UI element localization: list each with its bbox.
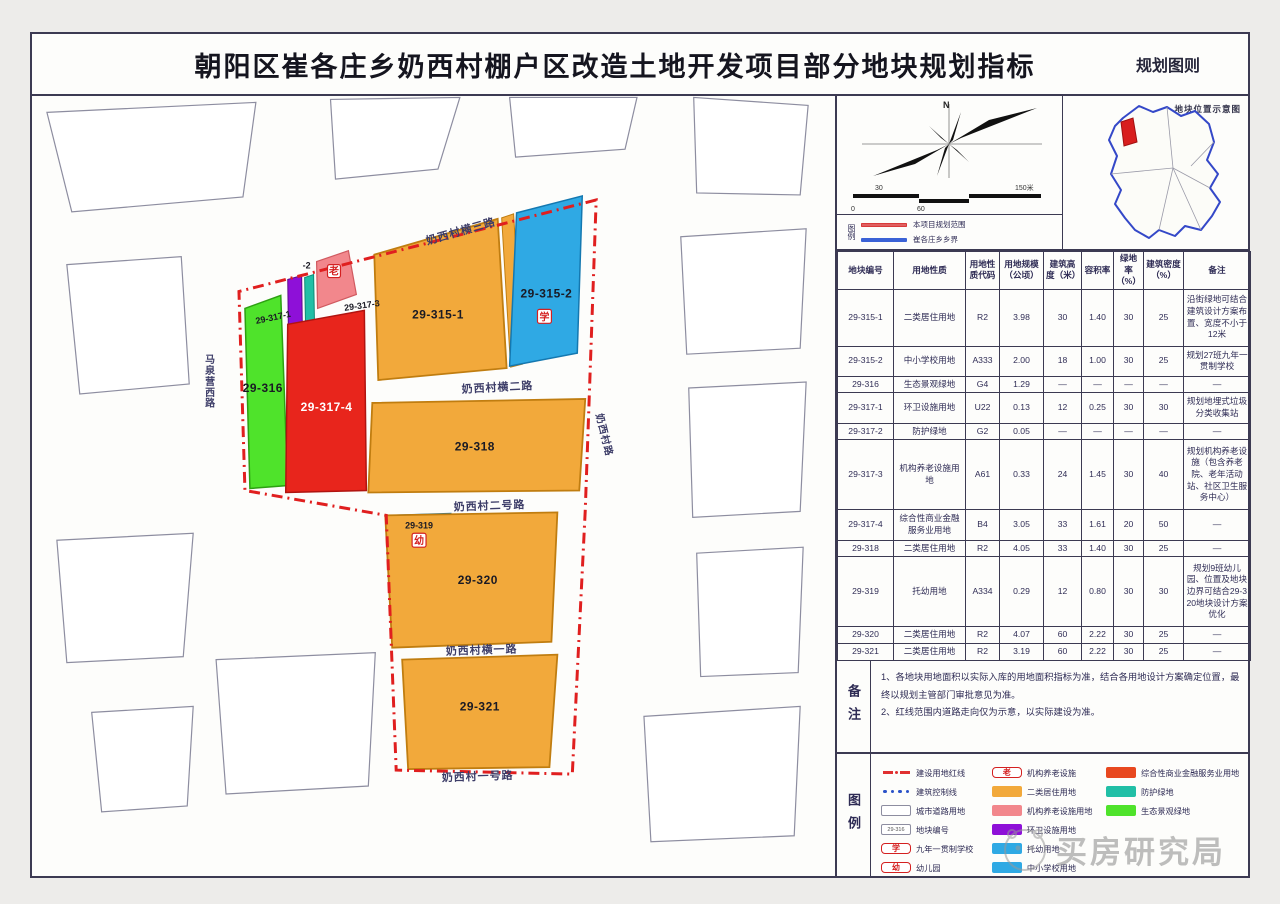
table-cell: 29-318 [838,540,894,557]
label-29-321: 29-321 [460,699,500,713]
table-cell: 29-315-1 [838,289,894,346]
table-cell: 二类居住用地 [894,644,966,661]
table-cell: 二类居住用地 [894,540,966,557]
legend-item: 防护绿地 [1106,783,1246,800]
table-cell: 0.33 [1000,440,1044,510]
建筑控制线-swatch [881,786,911,797]
col-land-use: 用地性质 [894,252,966,290]
table-cell: 29-317-1 [838,393,894,423]
right-panel: N 30 150米 0 60 图例 [835,96,1250,878]
inset-title: 地块位置示意图 [1174,104,1241,114]
table-cell: 生态景观绿地 [894,376,966,393]
plan-sheet: 朝阳区崔各庄乡奶西村棚户区改造土地开发项目部分地块规划指标 规划图则 [30,32,1250,878]
legend-item: 机构养老设施用地 [992,802,1104,819]
table-cell: 12 [1044,557,1082,627]
legend-item: 环卫设施用地 [992,821,1104,838]
地块编号-swatch: 29-316 [881,824,911,835]
legend-column: 综合性商业金融服务业用地防护绿地生态景观绿地 [1106,764,1246,876]
table-row: 29-317-1环卫设施用地U220.13120.253030规划地埋式垃圾分类… [838,393,1251,423]
table-row: 29-315-1二类居住用地R23.98301.403025沿街绿地可结合建筑设… [838,289,1251,346]
table-cell: U22 [966,393,1000,423]
table-cell: 3.05 [1000,510,1044,540]
table-row: 29-318二类居住用地R24.05331.403025— [838,540,1251,557]
legend-item-label: 地块编号 [916,824,949,836]
project-boundary-swatch [861,223,907,227]
legend-item: 生态景观绿地 [1106,802,1246,819]
legend-item-label: 生态景观绿地 [1141,805,1190,817]
table-cell: 30 [1144,393,1184,423]
table-row: 29-315-2中小学校用地A3332.00181.003025规划27班九年一… [838,346,1251,376]
svg-text:学: 学 [539,310,549,323]
label-29-316: 29-316 [243,381,283,395]
scale-150: 150米 [1015,183,1034,192]
table-cell: 0.29 [1000,557,1044,627]
notes-section: 备注 1、各地块用地面积以实际入库的用地面积指标为准，结合各用地设计方案确定位置… [837,661,1250,754]
legend-item-label: 机构养老设施 [1027,767,1076,779]
table-cell: 3.19 [1000,644,1044,661]
road-label-no2: 奶西村二号路 [454,497,526,513]
table-cell: R2 [966,627,1000,644]
table-cell: 1.40 [1082,289,1114,346]
table-cell: 中小学校用地 [894,346,966,376]
notes-label: 备注 [837,661,871,752]
road-label-east: 奶西村路 [593,411,616,458]
table-cell: A61 [966,440,1000,510]
kindergarten-icon: 幼 [412,533,426,547]
legend-item: 中小学校用地 [992,859,1104,876]
table-cell: — [1044,376,1082,393]
legend-item: 29-316地块编号 [881,821,990,838]
table-row: 29-317-2防护绿地G20.05————— [838,423,1251,440]
col-plot-id: 地块编号 [838,252,894,290]
scale-60: 60 [917,206,925,213]
table-row: 29-319托幼用地A3340.29120.803030规划9班幼儿园、位置及地… [838,557,1251,627]
table-cell: 29-320 [838,627,894,644]
table-cell: 综合性商业金融服务业用地 [894,510,966,540]
legend-item-label: 建设用地红线 [916,767,965,779]
panel-top: N 30 150米 0 60 图例 [837,96,1250,251]
plot-29-317-3 [317,251,357,309]
table-cell: 0.25 [1082,393,1114,423]
table-cell: 2.22 [1082,644,1114,661]
table-cell: 2.22 [1082,627,1114,644]
table-row: 29-317-3机构养老设施用地A610.33241.453040规划机构养老设… [838,440,1251,510]
indicator-table: 地块编号 用地性质 用地性质代码 用地规模（公顷） 建筑高度（米） 容积率 绿地… [837,251,1251,661]
table-cell: 环卫设施用地 [894,393,966,423]
table-cell: A333 [966,346,1000,376]
mini-legend-label: 崔各庄乡乡界 [913,234,958,245]
table-cell: — [1184,540,1251,557]
table-cell: 30 [1144,557,1184,627]
综合性商业金融服务业用地-swatch [1106,767,1136,778]
table-cell: — [1184,423,1251,440]
table-cell: 29-317-3 [838,440,894,510]
table-cell: 25 [1144,644,1184,661]
table-cell: 30 [1114,644,1144,661]
建设用地红线-swatch [881,767,911,778]
legend-item: 综合性商业金融服务业用地 [1106,764,1246,781]
legend-item-label: 中小学校用地 [1027,862,1076,874]
幼儿园-swatch: 幼 [881,862,911,873]
col-density: 建筑密度（%） [1144,252,1184,290]
legend-item-label: 防护绿地 [1141,786,1174,798]
table-cell: G2 [966,423,1000,440]
legend-item-label: 环卫设施用地 [1027,824,1076,836]
table-cell: 1.61 [1082,510,1114,540]
legend-item-label: 建筑控制线 [916,786,957,798]
legend-column: 老机构养老设施二类居住用地机构养老设施用地环卫设施用地托幼用地中小学校用地 [992,764,1104,876]
legend-item: 老机构养老设施 [992,764,1104,781]
机构养老设施用地-swatch [992,805,1022,816]
table-cell: 24 [1044,440,1082,510]
table-cell: 0.05 [1000,423,1044,440]
legend-section: 图例 建设用地红线建筑控制线城市道路用地29-316地块编号学九年一贯制学校幼幼… [837,754,1250,878]
legend-item: 建设用地红线 [881,764,990,781]
table-cell: 29-317-4 [838,510,894,540]
plot-29-315-2 [510,196,583,366]
compass-rose-icon: N [862,100,1042,178]
col-code: 用地性质代码 [966,252,1000,290]
table-cell: 4.05 [1000,540,1044,557]
scale-bar: 30 150米 0 60 [851,183,1041,213]
table-cell: 60 [1044,644,1082,661]
mini-legend: 图例 本项目规划范围 崔各庄乡乡界 [837,215,1062,249]
label-29-320: 29-320 [458,573,498,587]
中小学校用地-swatch [992,862,1022,873]
table-cell: 60 [1044,627,1082,644]
map-canvas: 29-315-1 29-315-2 29-316 29-317-1 -2 29-… [32,96,835,878]
table-cell: 18 [1044,346,1082,376]
table-cell: 29-315-2 [838,346,894,376]
legend-item: 幼幼儿园 [881,859,990,876]
table-cell: — [1184,376,1251,393]
城市道路用地-swatch [881,805,911,816]
table-header-row: 地块编号 用地性质 用地性质代码 用地规模（公顷） 建筑高度（米） 容积率 绿地… [838,252,1251,290]
table-cell: G4 [966,376,1000,393]
table-cell: 0.80 [1082,557,1114,627]
sheet-type-label: 规划图则 [1088,52,1248,76]
legend-column: 建设用地红线建筑控制线城市道路用地29-316地块编号学九年一贯制学校幼幼儿园 [881,764,990,876]
table-cell: 25 [1144,540,1184,557]
road-label-west: 马泉营西路 [203,354,216,409]
legend-item: 城市道路用地 [881,802,990,819]
table-row: 29-321二类居住用地R23.19602.223025— [838,644,1251,661]
table-cell: 托幼用地 [894,557,966,627]
table-cell: 30 [1114,557,1144,627]
table-cell: R2 [966,644,1000,661]
note-item: 1、各地块用地面积以实际入库的用地面积指标为准，结合各用地设计方案确定位置，最终… [881,669,1240,704]
col-height: 建筑高度（米） [1044,252,1082,290]
township-boundary-swatch [861,238,907,242]
mini-legend-item: 崔各庄乡乡界 [861,234,966,245]
scale-0: 0 [851,206,855,213]
mini-legend-item: 本项目规划范围 [861,219,966,230]
col-area: 用地规模（公顷） [1000,252,1044,290]
legend-item-label: 幼儿园 [916,862,941,874]
table-cell: 25 [1144,289,1184,346]
legend-item: 二类居住用地 [992,783,1104,800]
table-cell: 33 [1044,540,1082,557]
plan-map: 29-315-1 29-315-2 29-316 29-317-1 -2 29-… [32,96,835,878]
table-cell: 29-317-2 [838,423,894,440]
table-row: 29-317-4综合性商业金融服务业用地B43.05331.612050— [838,510,1251,540]
table-cell: 29-321 [838,644,894,661]
indicator-table-wrap: 地块编号 用地性质 用地性质代码 用地规模（公顷） 建筑高度（米） 容积率 绿地… [837,251,1250,661]
legend-item-label: 综合性商业金融服务业用地 [1141,767,1239,779]
scale-30: 30 [875,185,883,192]
table-cell: 0.13 [1000,393,1044,423]
table-cell: — [1082,376,1114,393]
table-cell: — [1144,423,1184,440]
table-cell: 12 [1044,393,1082,423]
road-label-heng2: 奶西村横二路 [461,378,533,396]
托幼用地-swatch [992,843,1022,854]
table-cell: 50 [1144,510,1184,540]
mini-legend-label: 本项目规划范围 [913,219,966,230]
table-cell: 30 [1114,540,1144,557]
col-far: 容积率 [1082,252,1114,290]
table-cell: 29-316 [838,376,894,393]
table-cell: 1.00 [1082,346,1114,376]
table-cell: 3.98 [1000,289,1044,346]
legend-item-label: 机构养老设施用地 [1027,805,1093,817]
compass-cell: N 30 150米 0 60 图例 [837,96,1063,249]
table-cell: 30 [1114,393,1144,423]
table-cell: 30 [1114,627,1144,644]
svg-text:幼: 幼 [414,534,424,547]
table-row: 29-316生态景观绿地G41.29————— [838,376,1251,393]
table-cell: 4.07 [1000,627,1044,644]
school-icon: 学 [537,309,551,323]
notes-text: 1、各地块用地面积以实际入库的用地面积指标为准，结合各用地设计方案确定位置，最终… [871,661,1250,752]
mini-legend-title: 图例 [847,224,855,240]
label-29-317-2: -2 [303,261,311,271]
table-cell: 25 [1144,627,1184,644]
table-cell: 1.45 [1082,440,1114,510]
table-cell: 规划27班九年一贯制学校 [1184,346,1251,376]
table-cell: — [1044,423,1082,440]
防护绿地-swatch [1106,786,1136,797]
label-29-315-1: 29-315-1 [412,307,464,321]
legend-item-label: 九年一贯制学校 [916,843,973,855]
table-cell: — [1114,376,1144,393]
table-cell: — [1184,644,1251,661]
table-cell: 机构养老设施用地 [894,440,966,510]
north-label: N [943,100,950,110]
table-cell: 规划地埋式垃圾分类收集站 [1184,393,1251,423]
环卫设施用地-swatch [992,824,1022,835]
legend-item-label: 二类居住用地 [1027,786,1076,798]
table-cell: — [1144,376,1184,393]
table-cell: — [1184,510,1251,540]
svg-text:老: 老 [328,265,339,278]
label-29-315-2: 29-315-2 [521,286,573,300]
elderly-icon: 老 [328,265,341,278]
table-cell: 规划9班幼儿园、位置及地块边界可结合29-320地块设计方案优化 [1184,557,1251,627]
table-cell: R2 [966,289,1000,346]
legend-item: 托幼用地 [992,840,1104,857]
legend-item: 建筑控制线 [881,783,990,800]
col-remarks: 备注 [1184,252,1251,290]
road-label-no1: 奶西村一号路 [442,768,514,784]
table-cell: 规划机构养老设施（包含养老院、老年活动站、社区卫生服务中心） [1184,440,1251,510]
table-cell: 沿街绿地可结合建筑设计方案布置、宽度不小于12米 [1184,289,1251,346]
legend-label: 图例 [837,754,871,878]
table-cell: 33 [1044,510,1082,540]
location-inset: 地块位置示意图 [1063,96,1250,249]
生态景观绿地-swatch [1106,805,1136,816]
table-cell: 30 [1114,440,1144,510]
table-cell: 40 [1144,440,1184,510]
table-cell: 二类居住用地 [894,289,966,346]
legend-item-label: 托幼用地 [1027,843,1060,855]
col-green: 绿地率（%） [1114,252,1144,290]
table-row: 29-320二类居住用地R24.07602.223025— [838,627,1251,644]
table-cell: 1.40 [1082,540,1114,557]
机构养老设施-swatch: 老 [992,767,1022,778]
table-cell: 二类居住用地 [894,627,966,644]
location-inset-map: 地块位置示意图 [1063,96,1249,248]
table-cell: 防护绿地 [894,423,966,440]
compass-and-scale: N 30 150米 0 60 [837,96,1061,214]
label-29-318: 29-318 [455,440,495,454]
table-cell: 20 [1114,510,1144,540]
九年一贯制学校-swatch: 学 [881,843,911,854]
二类居住用地-swatch [992,786,1022,797]
legend-item-label: 城市道路用地 [916,805,965,817]
table-cell: — [1114,423,1144,440]
label-29-317-4: 29-317-4 [301,400,353,414]
title-bar: 朝阳区崔各庄乡奶西村棚户区改造土地开发项目部分地块规划指标 规划图则 [32,34,1248,96]
table-cell: — [1184,627,1251,644]
table-cell: B4 [966,510,1000,540]
label-29-319: 29-319 [405,520,433,530]
table-cell: A334 [966,557,1000,627]
table-cell: 25 [1144,346,1184,376]
note-item: 2、红线范围内道路走向仅为示意，以实际建设为准。 [881,704,1240,722]
table-cell: R2 [966,540,1000,557]
legend-grid: 建设用地红线建筑控制线城市道路用地29-316地块编号学九年一贯制学校幼幼儿园老… [871,754,1250,878]
table-cell: 2.00 [1000,346,1044,376]
table-cell: 1.29 [1000,376,1044,393]
table-cell: 30 [1114,346,1144,376]
table-cell: — [1082,423,1114,440]
table-cell: 30 [1114,289,1144,346]
table-cell: 30 [1044,289,1082,346]
legend-item: 学九年一贯制学校 [881,840,990,857]
page-title: 朝阳区崔各庄乡奶西村棚户区改造土地开发项目部分地块规划指标 [32,45,1088,84]
table-cell: 29-319 [838,557,894,627]
